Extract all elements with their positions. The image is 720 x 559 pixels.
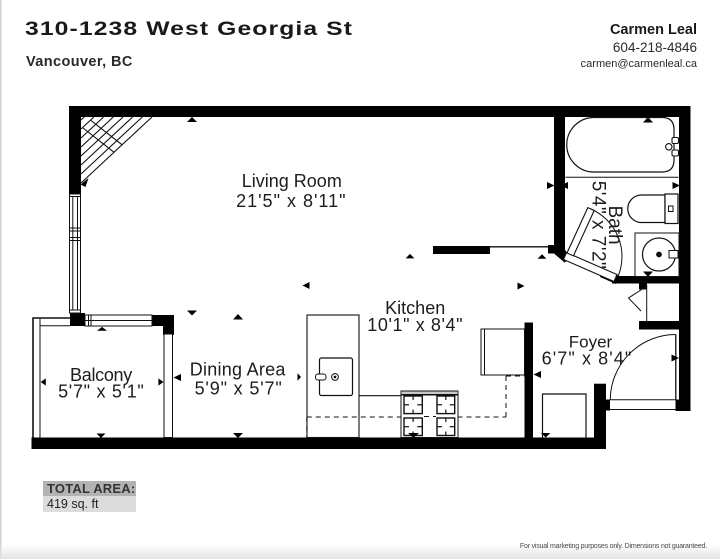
svg-text:5'9" x 5'7": 5'9" x 5'7" <box>195 378 283 398</box>
svg-text:5'7" x 5'1": 5'7" x 5'1" <box>58 382 144 402</box>
svg-text:10'1" x 8'4": 10'1" x 8'4" <box>367 315 463 335</box>
svg-text:5'4" x 7'2": 5'4" x 7'2" <box>588 181 609 270</box>
svg-text:21'5" x 8'11": 21'5" x 8'11" <box>236 191 346 211</box>
svg-text:Living Room: Living Room <box>242 171 342 191</box>
svg-text:6'7" x 8'4": 6'7" x 8'4" <box>542 349 633 369</box>
svg-text:Dining Area: Dining Area <box>190 360 287 380</box>
